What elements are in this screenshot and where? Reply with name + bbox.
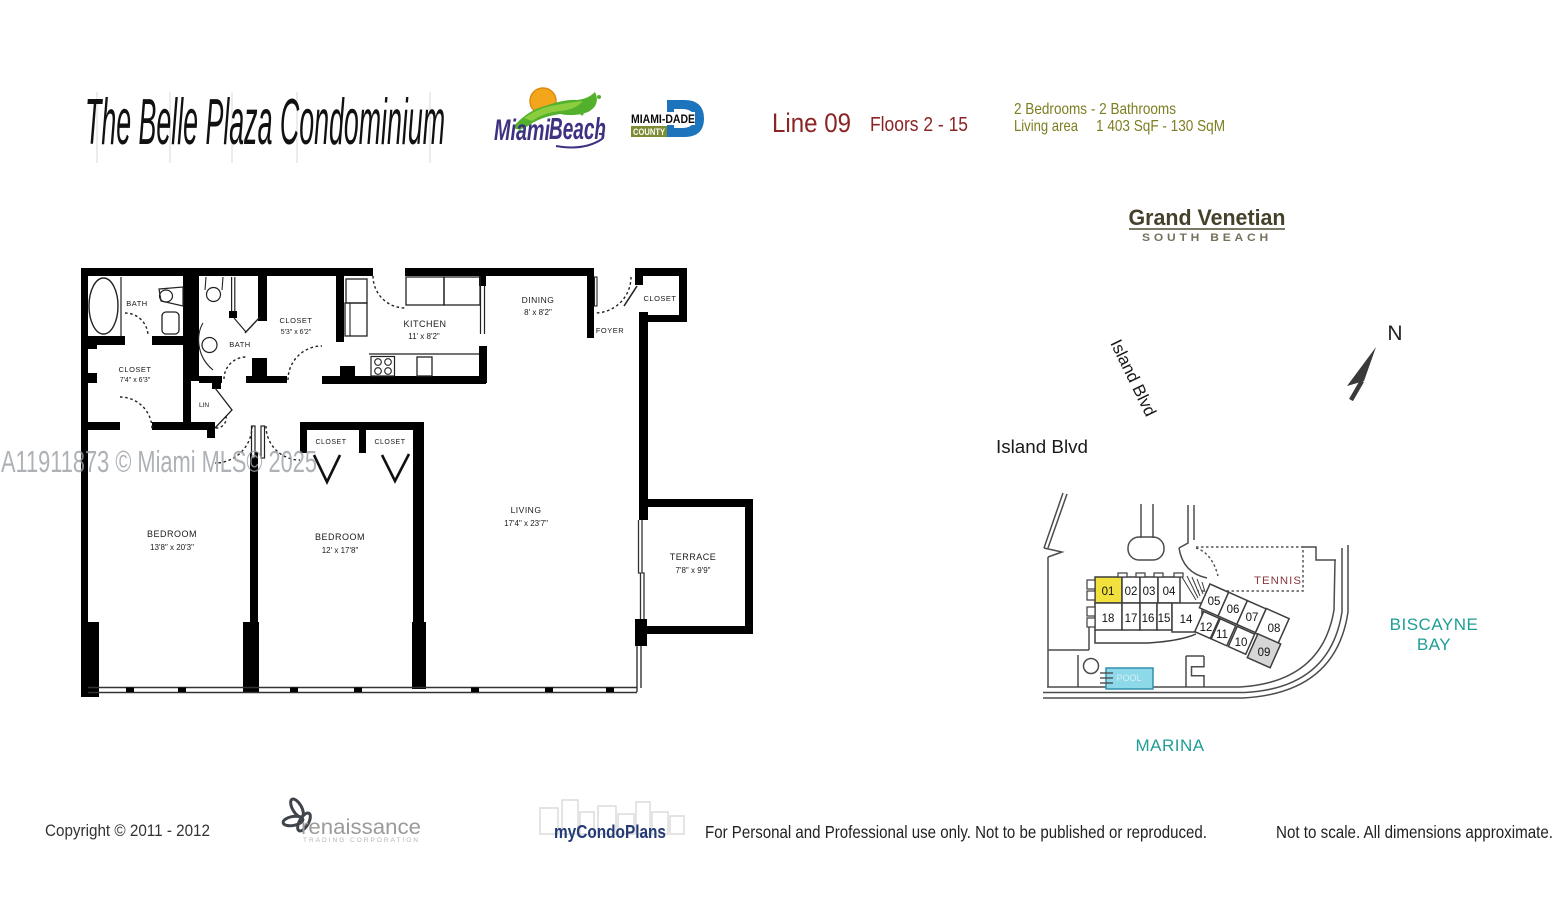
svg-text:Living area: Living area (1014, 118, 1078, 135)
svg-text:16: 16 (1142, 613, 1155, 625)
svg-text:12' x 17'8": 12' x 17'8" (322, 546, 359, 555)
svg-text:7'4" x 6'3": 7'4" x 6'3" (120, 377, 151, 384)
svg-text:13'8" x 20'3": 13'8" x 20'3" (150, 543, 194, 552)
svg-text:KITCHEN: KITCHEN (403, 319, 446, 329)
svg-text:12: 12 (1200, 622, 1213, 634)
svg-text:MIAMI-DADE: MIAMI-DADE (631, 112, 695, 126)
svg-text:CLOSET: CLOSET (374, 439, 405, 446)
svg-text:BATH: BATH (229, 340, 250, 349)
svg-text:02: 02 (1125, 586, 1138, 598)
svg-text:09: 09 (1258, 647, 1271, 659)
svg-text:TERRACE: TERRACE (670, 552, 717, 562)
svg-text:Not to scale. All dimensions: Not to scale. All dimensions approximate… (1276, 822, 1553, 842)
svg-text:LIVING: LIVING (511, 505, 542, 515)
svg-text:14: 14 (1180, 614, 1193, 626)
svg-text:18: 18 (1102, 613, 1115, 625)
svg-text:DINING: DINING (522, 295, 555, 305)
svg-text:15: 15 (1158, 613, 1171, 625)
svg-text:N: N (1387, 322, 1402, 345)
svg-text:BEDROOM: BEDROOM (147, 529, 197, 539)
svg-text:BISCAYNE: BISCAYNE (1390, 615, 1479, 634)
svg-text:2 Bedrooms - 2 Bathrooms: 2 Bedrooms - 2 Bathrooms (1014, 101, 1176, 118)
svg-text:The Belle Plaza Condominium: The Belle Plaza Condominium (85, 87, 445, 159)
svg-text:06: 06 (1227, 604, 1240, 616)
svg-text:11' x 8'2": 11' x 8'2" (408, 332, 440, 341)
svg-text:17'4" x 23'7": 17'4" x 23'7" (504, 519, 548, 528)
svg-text:1 403 SqF - 130 SqM: 1 403 SqF - 130 SqM (1096, 118, 1225, 135)
svg-text:COUNTY: COUNTY (633, 127, 665, 137)
svg-text:11: 11 (1216, 629, 1228, 641)
svg-text:8' x 8'2": 8' x 8'2" (524, 308, 552, 317)
svg-text:17: 17 (1125, 613, 1138, 625)
svg-text:03: 03 (1143, 586, 1156, 598)
svg-text:Island Blvd: Island Blvd (996, 437, 1088, 457)
svg-text:Copyright © 2011 - 2012: Copyright © 2011 - 2012 (45, 821, 210, 840)
svg-text:CLOSET: CLOSET (279, 316, 312, 325)
svg-text:BEDROOM: BEDROOM (315, 532, 365, 542)
svg-text:5'3" x 6'2": 5'3" x 6'2" (281, 329, 312, 336)
svg-text:SOUTH BEACH: SOUTH BEACH (1142, 232, 1272, 244)
svg-text:7'8" x 9'9": 7'8" x 9'9" (676, 566, 711, 575)
svg-text:CLOSET: CLOSET (315, 439, 346, 446)
svg-text:10: 10 (1235, 637, 1248, 649)
svg-text:LIN: LIN (199, 402, 209, 409)
svg-text:FOYER: FOYER (596, 326, 624, 335)
svg-text:TRADING CORPORATION: TRADING CORPORATION (303, 837, 420, 844)
svg-text:Grand Venetian: Grand Venetian (1129, 205, 1286, 230)
svg-text:TENNIS: TENNIS (1254, 575, 1302, 587)
svg-text:MARINA: MARINA (1135, 736, 1204, 755)
svg-text:Miami: Miami (494, 114, 550, 147)
svg-text:07: 07 (1246, 612, 1259, 624)
svg-text:Island Blvd: Island Blvd (1106, 336, 1160, 419)
svg-text:A11911873 © Miami MLS© 2025: A11911873 © Miami MLS© 2025 (1, 444, 317, 479)
svg-text:05: 05 (1208, 596, 1221, 608)
svg-text:Line 09: Line 09 (772, 108, 851, 138)
svg-text:POOL: POOL (1116, 673, 1141, 683)
svg-text:For Personal and Professional: For Personal and Professional use only. … (705, 822, 1207, 842)
svg-text:renaissance: renaissance (301, 816, 421, 839)
svg-text:BATH: BATH (126, 299, 147, 308)
svg-text:08: 08 (1268, 623, 1281, 635)
svg-text:CLOSET: CLOSET (118, 365, 151, 374)
svg-text:BAY: BAY (1417, 635, 1451, 654)
svg-text:01: 01 (1102, 586, 1115, 598)
svg-text:CLOSET: CLOSET (643, 294, 676, 303)
svg-text:Floors 2 - 15: Floors 2 - 15 (870, 114, 968, 136)
svg-text:04: 04 (1163, 586, 1176, 598)
svg-text:myCondoPlans: myCondoPlans (554, 822, 666, 842)
